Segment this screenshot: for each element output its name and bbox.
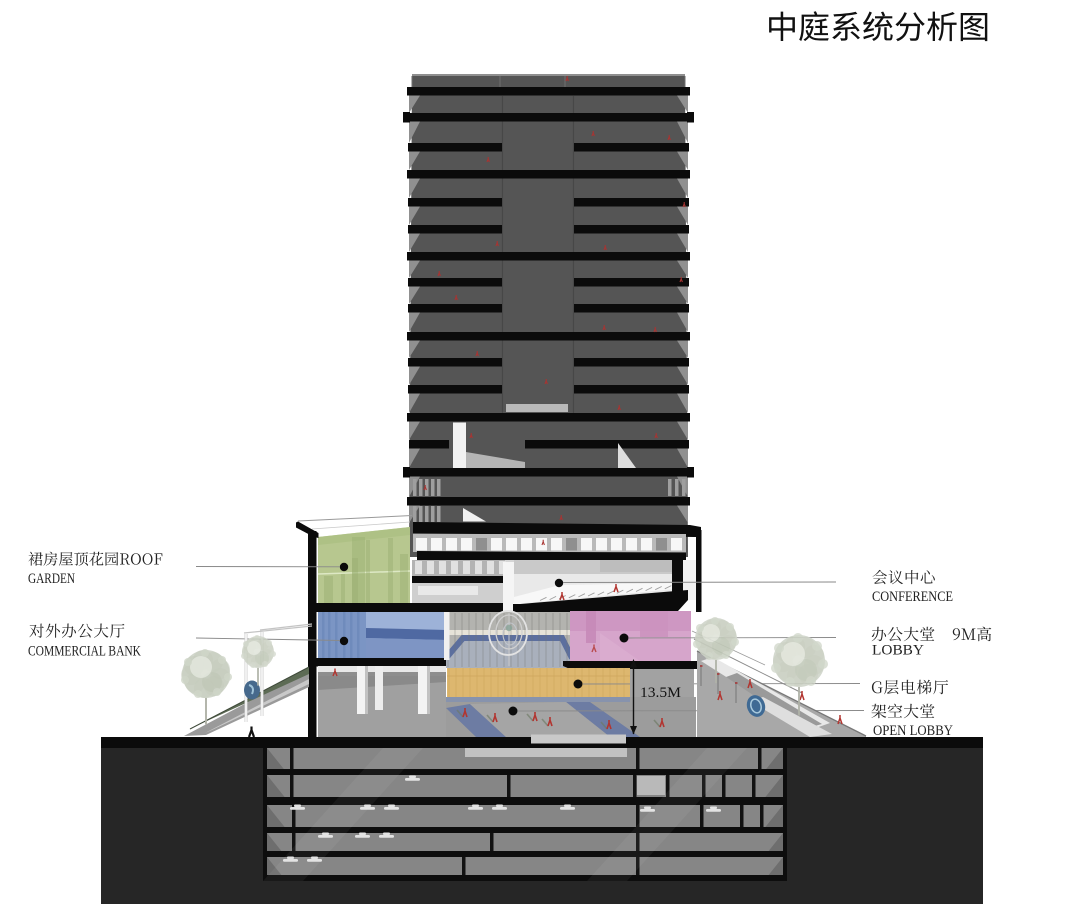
svg-text:COMMERCIAL BANK: COMMERCIAL BANK — [28, 644, 141, 660]
svg-text:13.5M: 13.5M — [640, 685, 681, 701]
svg-text:LOBBY: LOBBY — [872, 643, 925, 659]
svg-text:OPEN LOBBY: OPEN LOBBY — [873, 723, 953, 739]
svg-text:GARDEN: GARDEN — [28, 571, 75, 587]
svg-text:CONFERENCE: CONFERENCE — [872, 589, 953, 605]
